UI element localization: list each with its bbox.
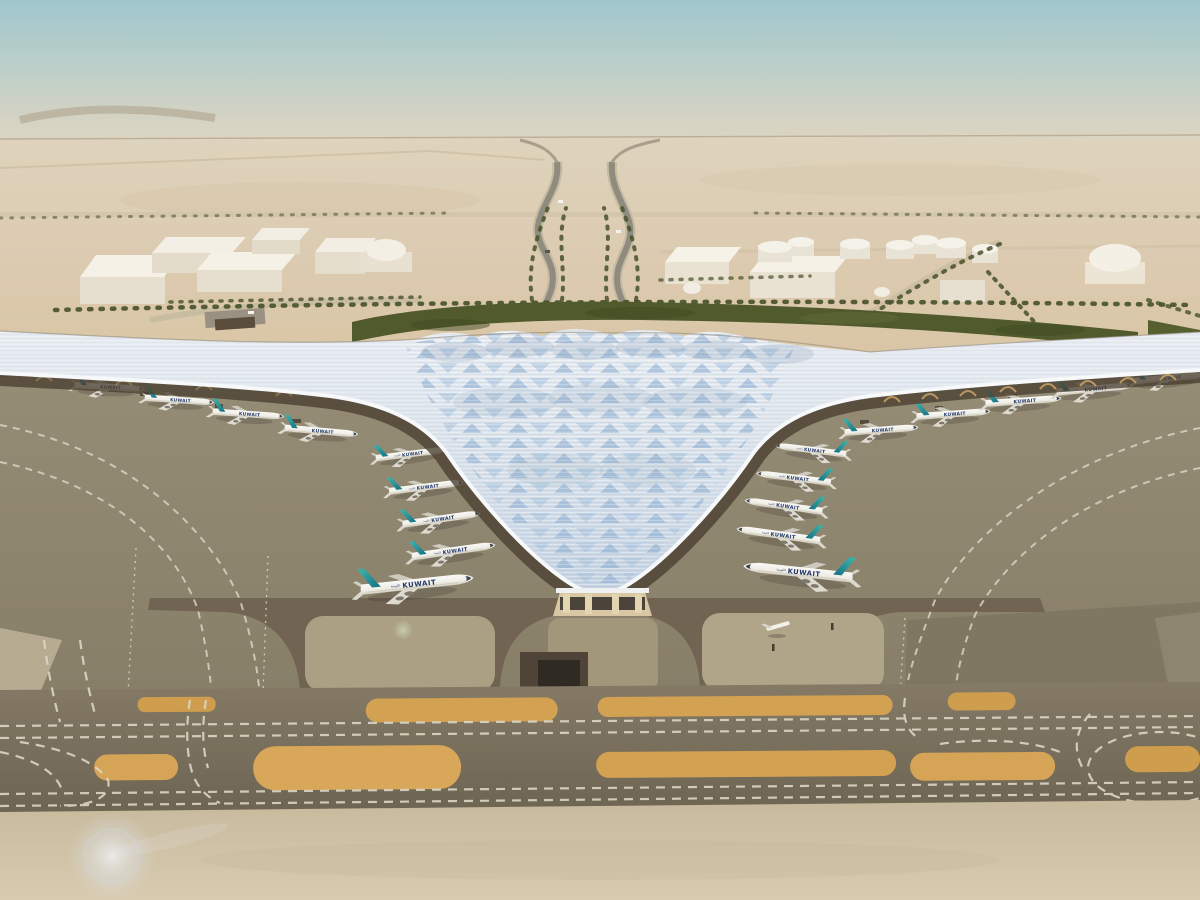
terminal-entrance-facade <box>553 588 652 616</box>
lens-flare-blue <box>68 812 156 900</box>
foreground-sand <box>0 800 1200 900</box>
scene-canvas: الكويتيةKUWAIT الكويتيةKUWAIT الكويتيةKU… <box>0 0 1200 900</box>
sky <box>0 0 1200 150</box>
concrete-stand-panel-right <box>702 613 884 691</box>
cross-road <box>0 212 1200 217</box>
entrance-glazing <box>560 597 645 610</box>
dome-building-right <box>1089 244 1141 272</box>
airport-aerial-rendering: الكويتيةKUWAIT الكويتيةKUWAIT الكويتيةKU… <box>0 0 1200 900</box>
lens-flare-green <box>393 620 413 640</box>
dome-building <box>366 239 406 261</box>
